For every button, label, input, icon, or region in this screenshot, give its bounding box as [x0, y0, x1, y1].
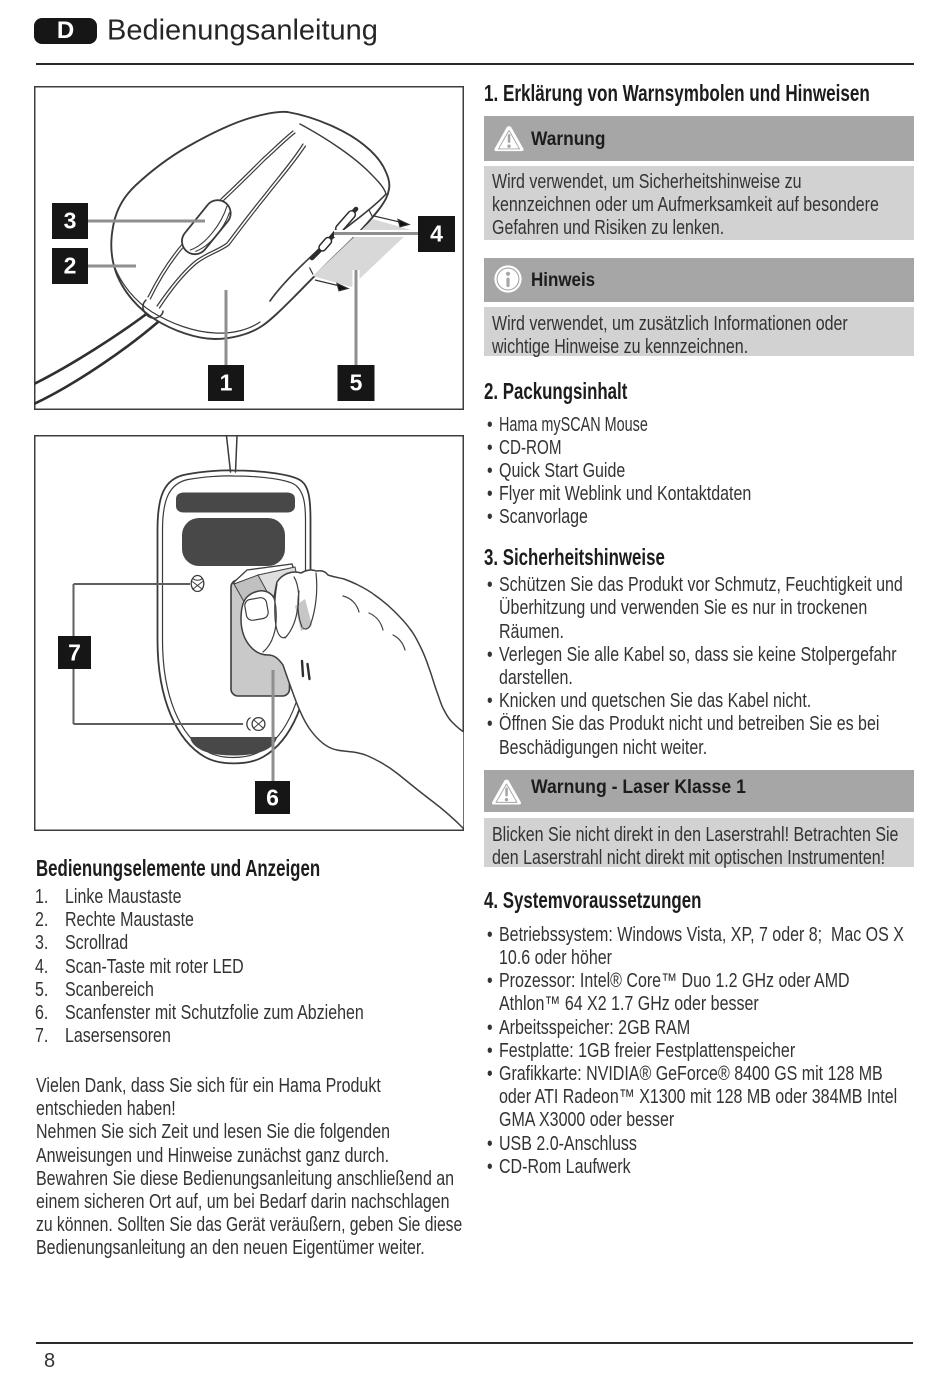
svg-text:3: 3 — [64, 208, 77, 234]
svg-text:7: 7 — [68, 640, 81, 666]
svg-text:5: 5 — [350, 370, 363, 396]
svg-text:6: 6 — [266, 785, 279, 811]
svg-text:2: 2 — [64, 253, 77, 279]
svg-text:1: 1 — [220, 370, 233, 396]
svg-text:4: 4 — [430, 221, 443, 247]
